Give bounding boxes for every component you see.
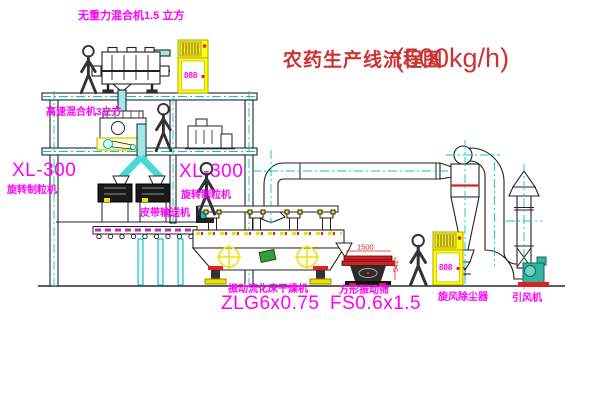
exhaust-duct — [252, 150, 468, 224]
label-granulator-right-name: 旋转制粒机 — [181, 191, 231, 201]
panel-display: 888 — [184, 71, 198, 80]
label-cyclone: 旋风除尘器 — [438, 293, 488, 303]
control-cabinet-right: 888 — [433, 232, 463, 285]
panel-display: 888 — [439, 263, 453, 272]
worker-figure — [156, 104, 171, 151]
indicator-light-icon — [201, 75, 204, 78]
label-granulator-left-name: 旋转制粒机 — [7, 186, 57, 196]
feed-pipe-y — [113, 157, 165, 184]
label-high-speed-mixer: 高速混合机3立方 — [46, 108, 122, 118]
indicator-light-icon — [458, 236, 462, 240]
indicator-light-icon — [456, 267, 459, 270]
label-belt-conveyor: 皮带输送机 — [140, 209, 190, 219]
granulator-left-machine — [98, 184, 132, 222]
worker-figure — [411, 235, 427, 285]
label-sieve-model: FS0.6x1.5 — [330, 294, 421, 313]
worker-figure — [81, 46, 96, 93]
dimension-label: 1500 — [357, 243, 374, 252]
vibrating-sieve-machine: 1500 541 — [342, 243, 400, 287]
page-title-capacity: (500kg/h) — [395, 45, 509, 72]
label-fan: 引风机 — [512, 294, 542, 304]
fan-base — [518, 282, 549, 287]
label-granulator-right-model: XL-300 — [179, 162, 243, 181]
cad-flow-diagram: 888 — [0, 0, 600, 403]
label-granulator-left-model: XL-300 — [12, 161, 76, 180]
indicator-light-icon — [203, 44, 207, 48]
mill-machine — [185, 119, 235, 149]
label-gravity-mixer: 无重力混合机1.5 立方 — [78, 11, 184, 22]
belt-conveyor-machine — [93, 227, 197, 286]
dimension-label: 541 — [393, 260, 400, 272]
label-dryer-model: ZLG6x0.75 — [221, 294, 320, 313]
gravity-mixer-machine — [92, 48, 170, 113]
control-cabinet-top: 888 — [178, 40, 208, 93]
